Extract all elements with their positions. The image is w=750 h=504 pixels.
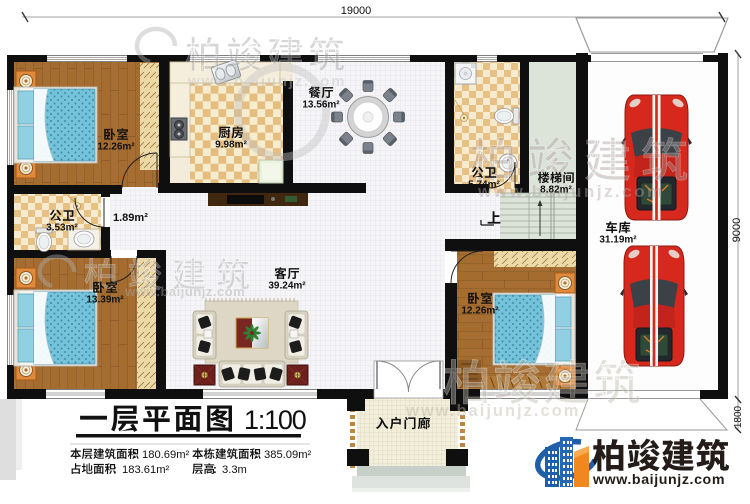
svg-text:9.98m²: 9.98m² — [215, 140, 247, 151]
svg-text:12.26m²: 12.26m² — [97, 142, 135, 153]
svg-text::: : — [113, 464, 117, 476]
svg-text:www.baijunjz.com: www.baijunjz.com — [592, 472, 725, 488]
svg-text:3.53m²: 3.53m² — [46, 223, 78, 234]
svg-text:13.39m²: 13.39m² — [86, 295, 124, 306]
svg-text:13.56m²: 13.56m² — [302, 100, 340, 111]
svg-text:www.baijunjz.com: www.baijunjz.com — [405, 402, 580, 420]
svg-text:1800: 1800 — [733, 405, 744, 428]
svg-text:12.26m²: 12.26m² — [461, 306, 499, 317]
svg-text:1:100: 1:100 — [244, 405, 306, 435]
svg-text:39.24m²: 39.24m² — [268, 281, 306, 292]
svg-text::: : — [213, 464, 217, 476]
svg-text:31.19m²: 31.19m² — [599, 235, 637, 246]
svg-text:www.baijunjz.com: www.baijunjz.com — [124, 284, 245, 299]
svg-text:385.09m²: 385.09m² — [264, 449, 312, 461]
svg-text:19000: 19000 — [341, 5, 372, 17]
svg-text:5.74m²: 5.74m² — [468, 180, 500, 191]
svg-text:180.69m²: 180.69m² — [142, 449, 190, 461]
svg-text:183.61m²: 183.61m² — [122, 464, 170, 476]
svg-text:9000: 9000 — [731, 218, 743, 242]
svg-text:1.89m²: 1.89m² — [113, 212, 148, 224]
svg-text:3.3m: 3.3m — [222, 464, 247, 476]
svg-text:8.82m²: 8.82m² — [540, 185, 572, 196]
svg-text::: : — [133, 449, 137, 461]
svg-text::: : — [255, 449, 259, 461]
